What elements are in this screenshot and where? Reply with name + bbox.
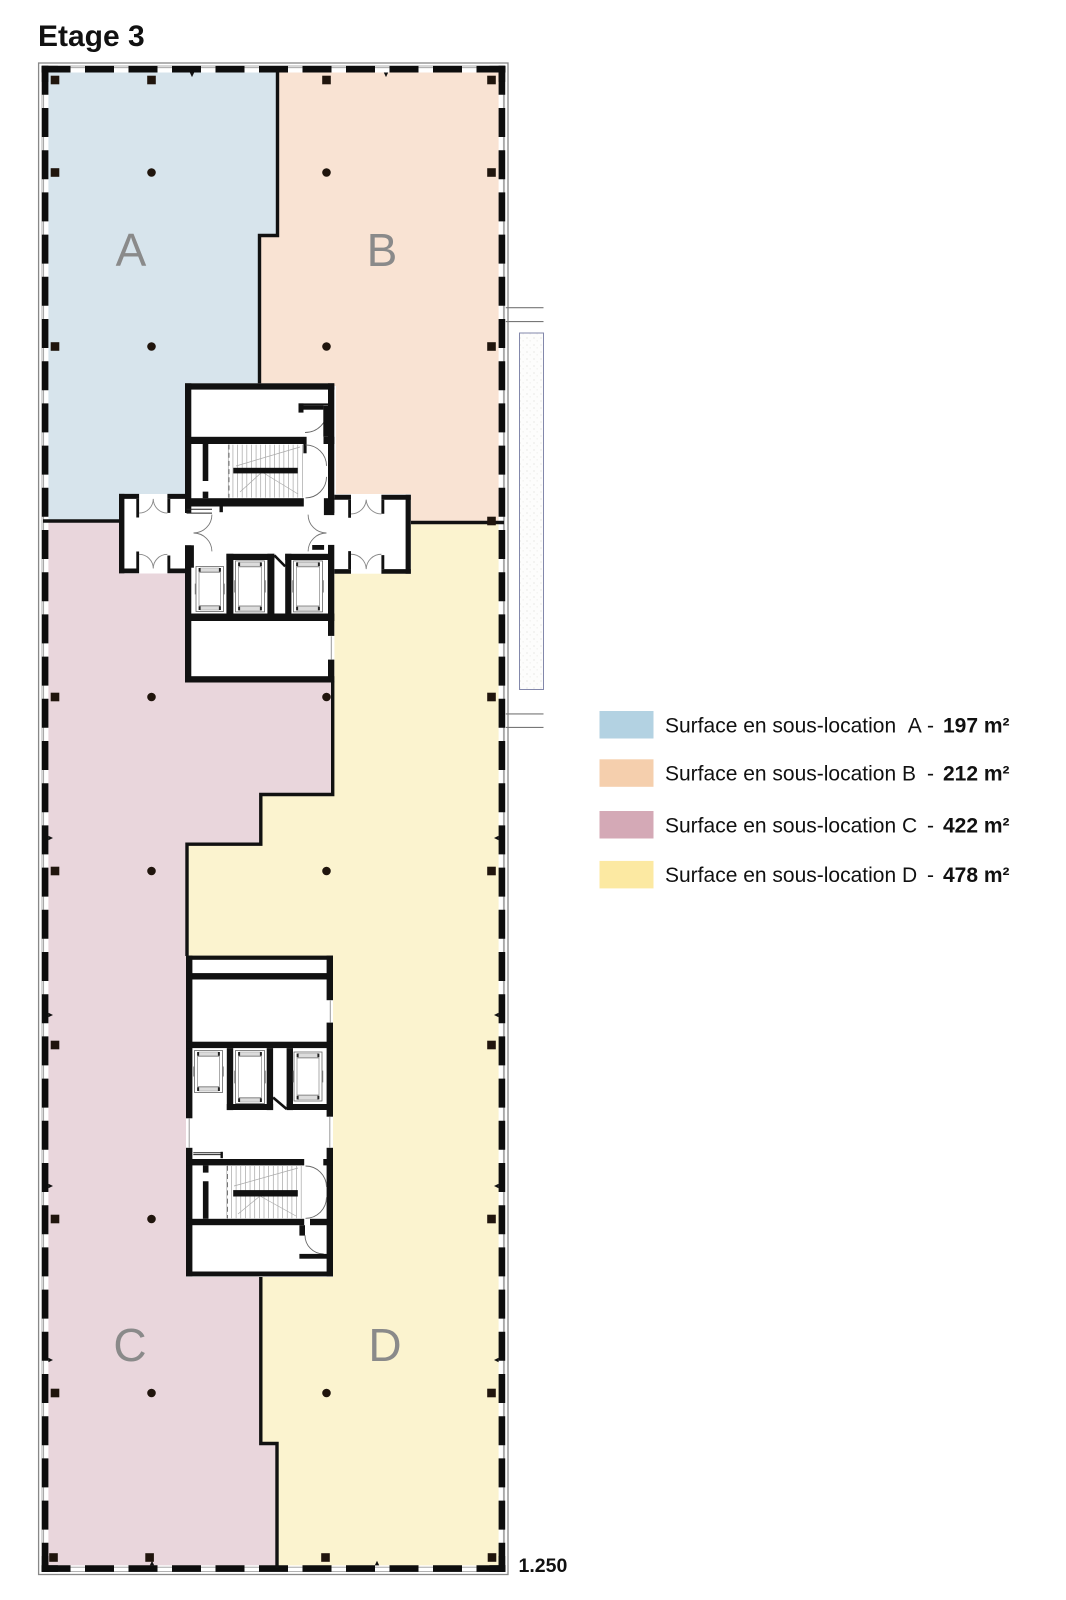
svg-text:Etage 3: Etage 3: [38, 20, 145, 53]
svg-text:Surface en sous-location C-422: Surface en sous-location C-422 m²: [665, 814, 1010, 837]
svg-text:A: A: [116, 224, 147, 276]
svg-text:Surface en sous-location D-478: Surface en sous-location D-478 m²: [665, 864, 1010, 887]
svg-text:B: B: [367, 224, 398, 276]
svg-text:1.250: 1.250: [519, 1555, 568, 1577]
svg-text:C: C: [113, 1319, 146, 1371]
svg-text:D: D: [368, 1319, 401, 1371]
svg-text:Surface en sous-location B-212: Surface en sous-location B-212 m²: [665, 763, 1010, 786]
svg-text:Surface en sous-location A-19: Surface en sous-location A-197 m²: [665, 714, 1010, 737]
